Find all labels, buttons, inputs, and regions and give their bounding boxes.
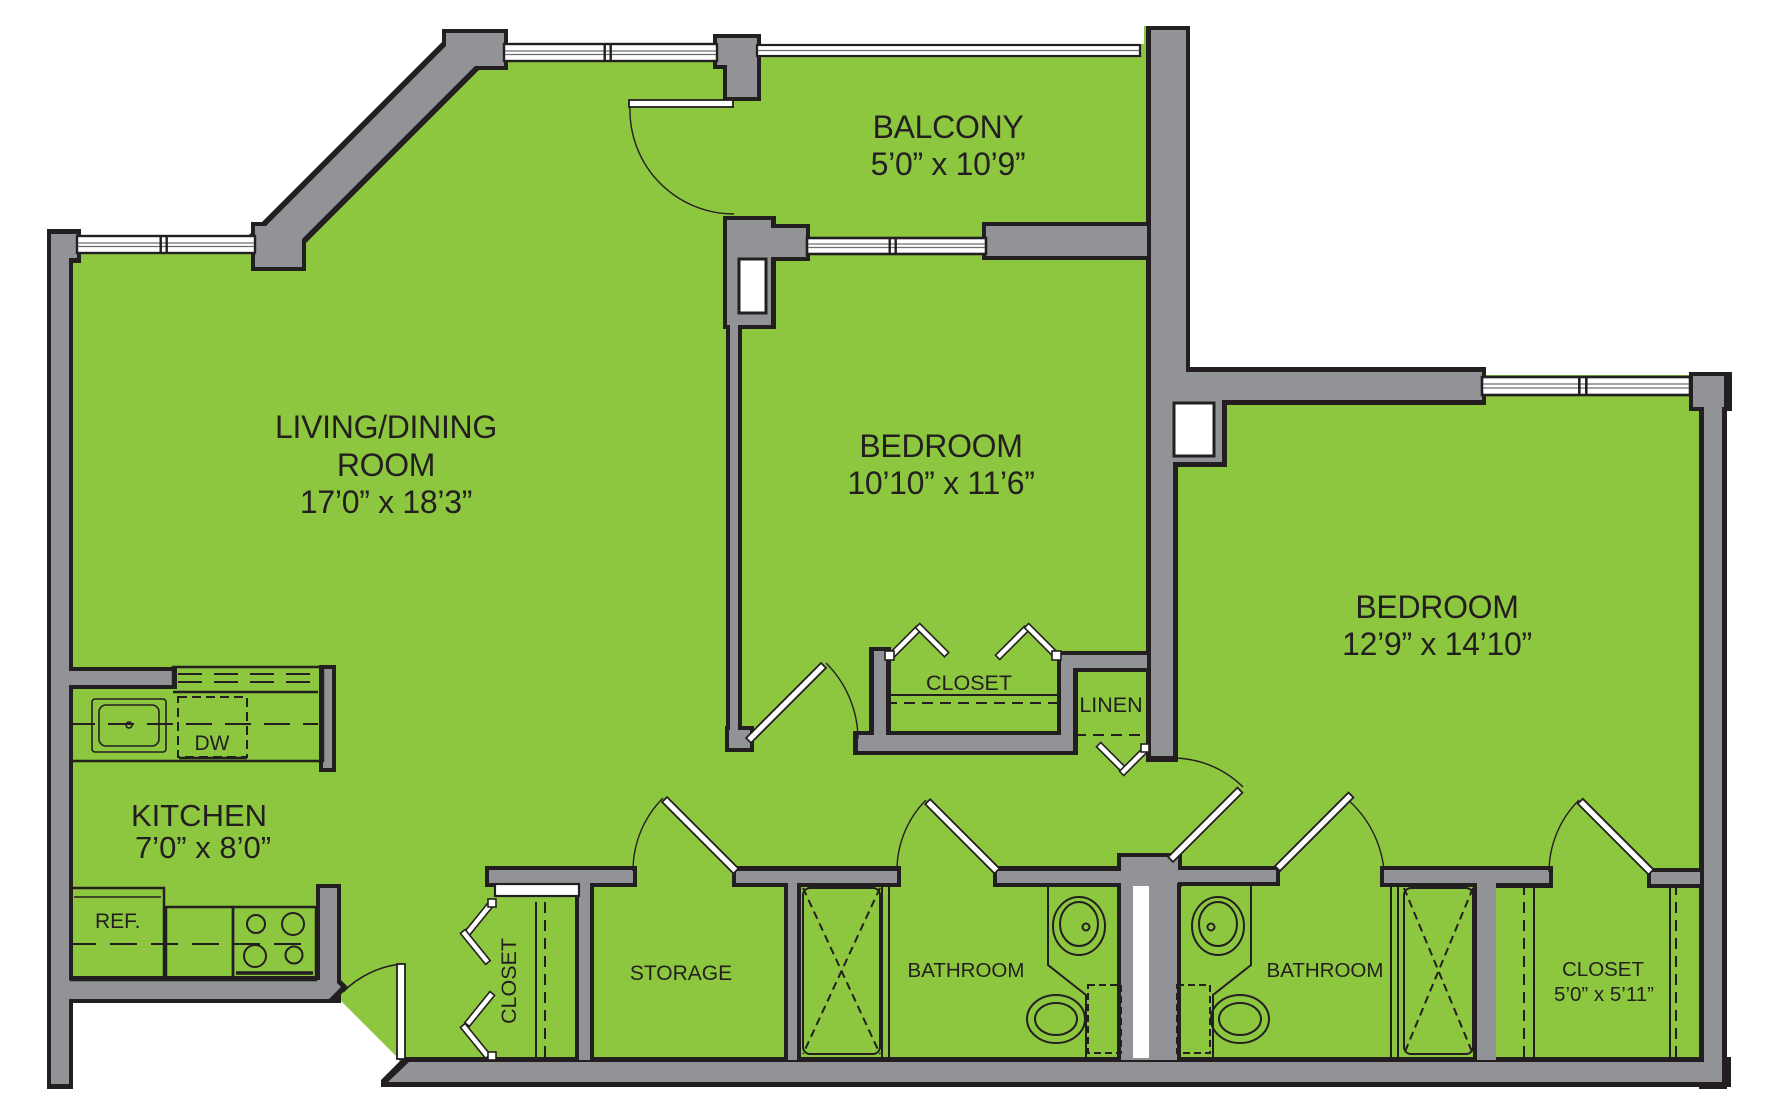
svg-text:5’0” x 5’11”: 5’0” x 5’11”: [1554, 983, 1654, 1006]
svg-text:STORAGE: STORAGE: [630, 962, 732, 985]
svg-text:BEDROOM: BEDROOM: [1355, 589, 1518, 625]
svg-text:BATHROOM: BATHROOM: [1267, 959, 1384, 982]
svg-text:CLOSET: CLOSET: [1562, 958, 1644, 981]
svg-text:REF.: REF.: [95, 910, 141, 933]
svg-text:BALCONY: BALCONY: [873, 109, 1024, 145]
svg-text:DW: DW: [195, 732, 230, 755]
svg-text:BATHROOM: BATHROOM: [908, 959, 1025, 982]
svg-text:10’10” x 11’6”: 10’10” x 11’6”: [847, 465, 1034, 501]
svg-text:CLOSET: CLOSET: [926, 671, 1012, 695]
svg-text:BEDROOM: BEDROOM: [859, 428, 1022, 464]
svg-text:LINEN: LINEN: [1079, 693, 1142, 717]
svg-text:LIVING/DINING: LIVING/DINING: [275, 409, 497, 445]
svg-text:7’0” x 8’0”: 7’0” x 8’0”: [135, 830, 271, 865]
svg-text:KITCHEN: KITCHEN: [131, 798, 267, 833]
svg-text:ROOM: ROOM: [337, 447, 435, 483]
svg-text:17’0” x 18’3”: 17’0” x 18’3”: [300, 484, 472, 520]
svg-text:CLOSET: CLOSET: [497, 938, 521, 1024]
svg-text:12’9” x 14’10”: 12’9” x 14’10”: [1342, 626, 1532, 662]
svg-text:5’0” x 10’9”: 5’0” x 10’9”: [871, 146, 1026, 182]
